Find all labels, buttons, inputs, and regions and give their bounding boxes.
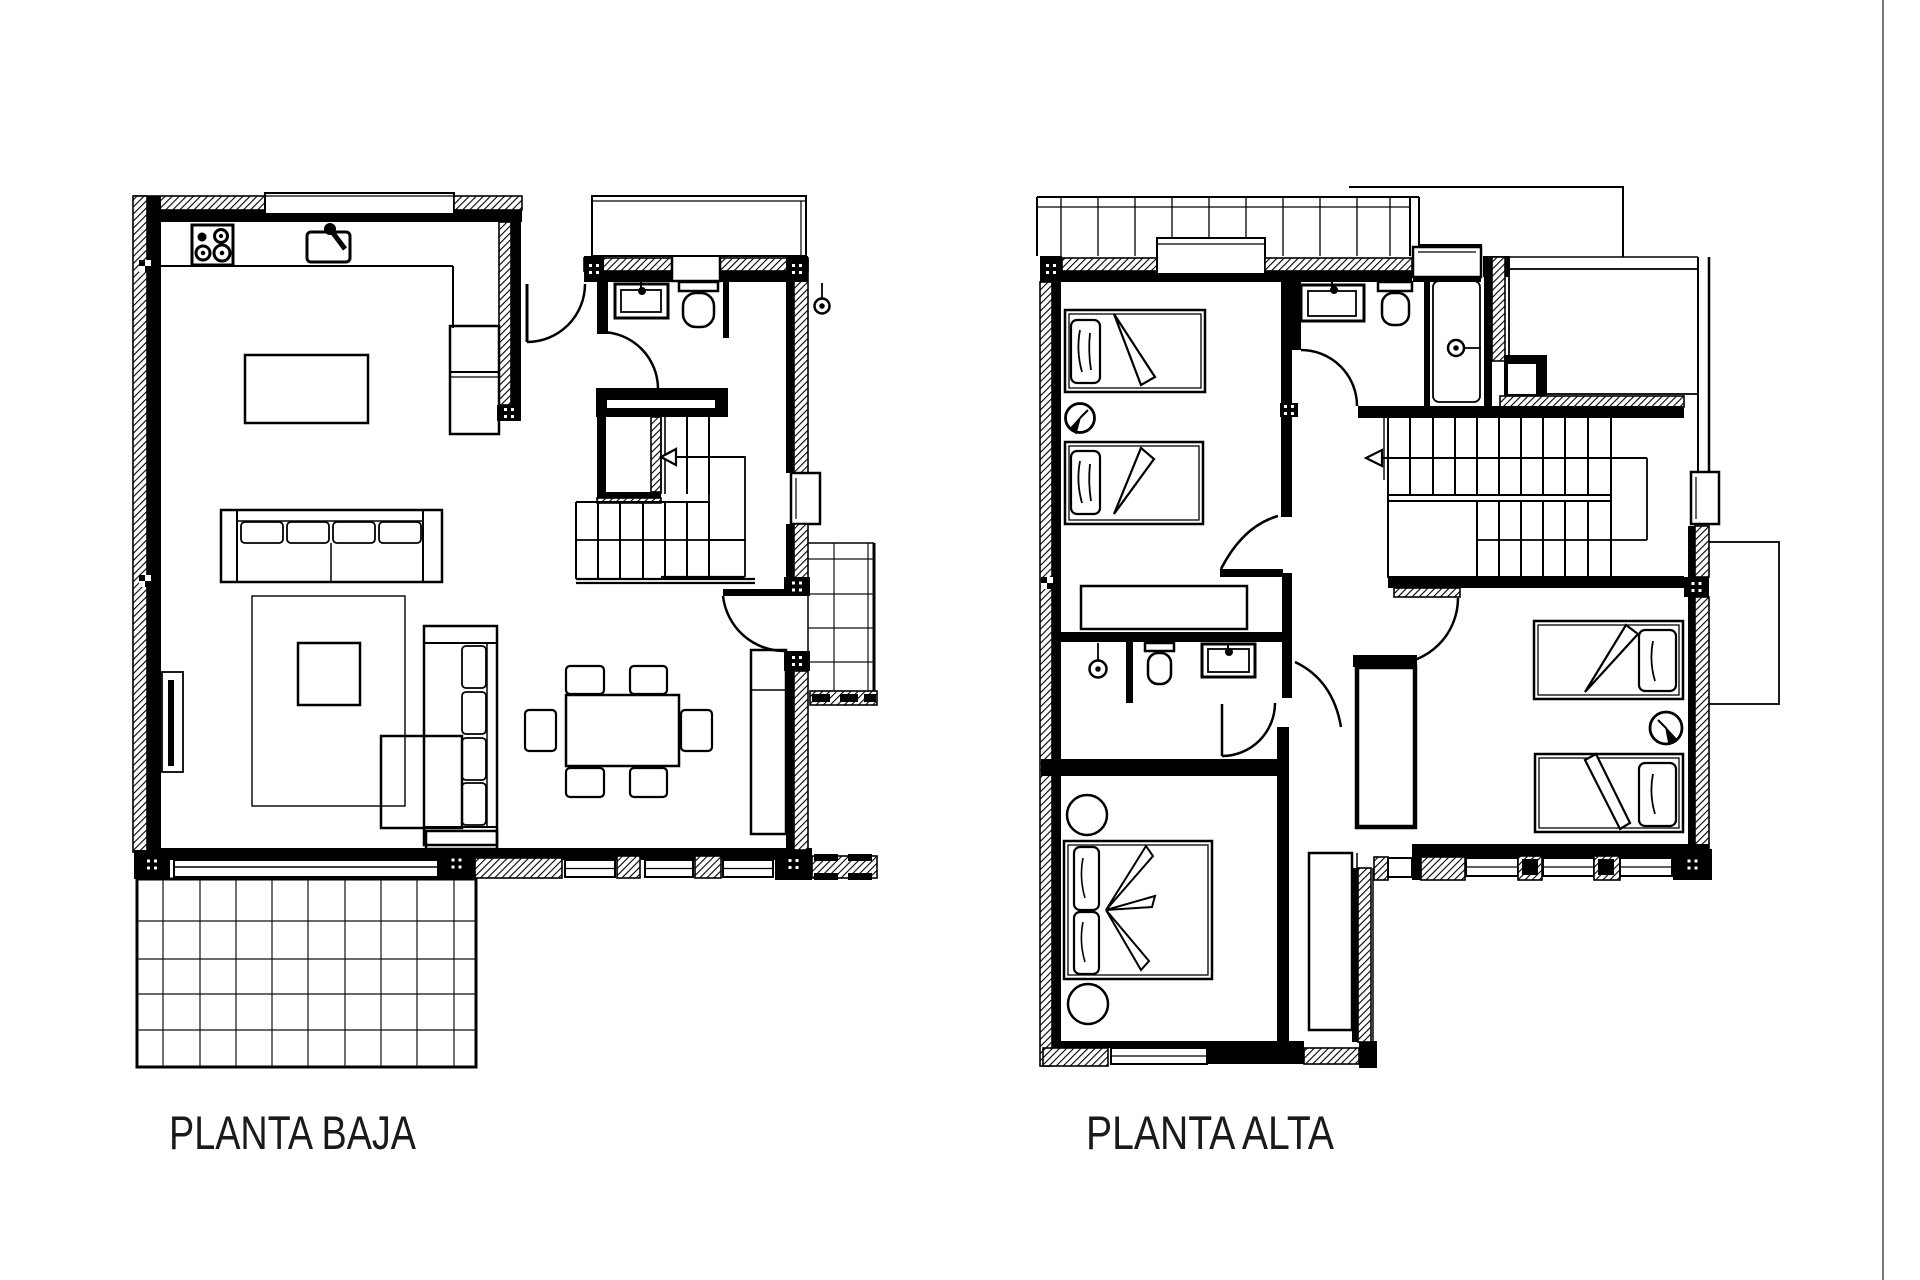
svg-text:PLANTA ALTA: PLANTA ALTA: [1086, 1106, 1335, 1159]
svg-text:PLANTA BAJA: PLANTA BAJA: [169, 1106, 417, 1159]
